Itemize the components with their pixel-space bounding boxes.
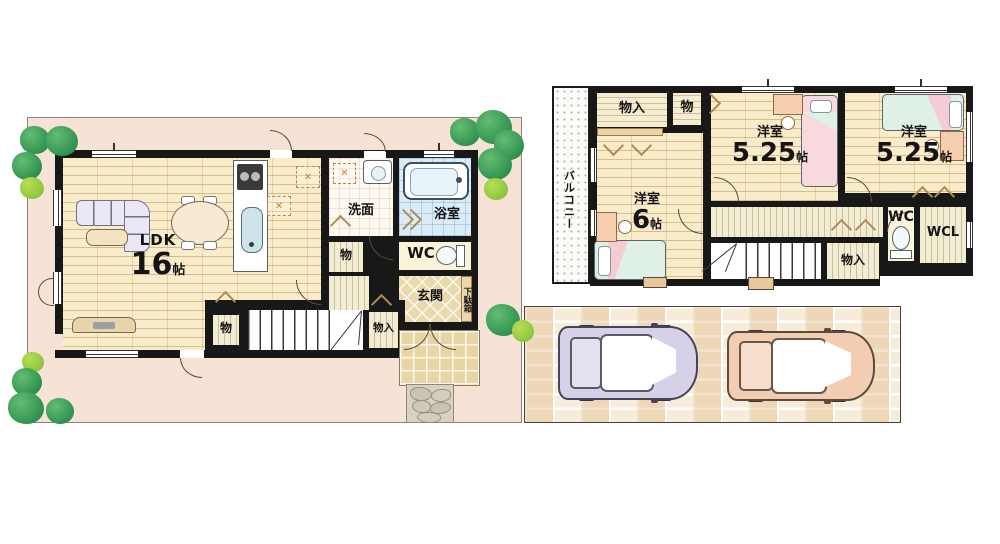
wash-basin (363, 160, 392, 184)
bathtub (403, 162, 469, 200)
bed-6jo (594, 240, 666, 280)
window (966, 222, 973, 248)
window (53, 190, 62, 226)
tree-icon (12, 152, 42, 180)
window (895, 86, 947, 93)
label-monoire-bottom: 物入 (834, 254, 872, 267)
car-left (558, 326, 698, 400)
label-ldk: LDK 16帖 (118, 233, 198, 280)
label-mono-a: 物 (334, 249, 358, 262)
label-wcl: WCL (924, 226, 962, 240)
label-balcony: バルコニー (563, 152, 575, 248)
closet-shelf-bar (597, 128, 663, 136)
label-room6: 洋室 6帖 (612, 193, 682, 234)
window (86, 350, 138, 358)
balcony-door (590, 148, 597, 182)
window (424, 150, 454, 158)
kitchen-sink (241, 207, 263, 253)
tree-icon (46, 126, 78, 156)
window (966, 112, 973, 162)
tree-icon (20, 177, 44, 199)
tree-icon (484, 178, 508, 200)
label-senmen: 洗面 (334, 204, 388, 218)
tree-icon (8, 392, 44, 424)
stove-icon (237, 164, 263, 190)
stairs-1f (248, 310, 363, 350)
stairs-2f (711, 243, 821, 279)
appliance-space: ✕ (267, 196, 291, 216)
window (590, 210, 597, 236)
label-room525b: 洋室 5.25帖 (872, 126, 956, 167)
appliance-space: ✕ (296, 166, 320, 188)
label-mono-b: 物 (215, 322, 237, 335)
door-gap (364, 151, 386, 159)
window (53, 272, 62, 304)
exterior-vent (748, 277, 774, 290)
window (92, 150, 136, 158)
desk (773, 94, 803, 115)
label-room525a: 洋室 5.25帖 (728, 126, 812, 167)
tv-board (72, 317, 136, 333)
label-genkan: 玄関 (402, 290, 458, 304)
window (742, 86, 794, 93)
label-wc-2f: WC (886, 210, 916, 225)
label-mono-top: 物 (676, 101, 698, 115)
label-monoire-top: 物入 (612, 102, 652, 116)
tree-icon (46, 398, 74, 424)
stone-approach (406, 384, 454, 423)
dining-chair (203, 241, 217, 250)
label-wc-1f: WC (404, 246, 438, 262)
door-gap (270, 150, 292, 158)
kitchen-counter (233, 160, 268, 272)
exterior-vent (643, 277, 667, 288)
floor-plan-canvas: ✕ ✕ ✕ (0, 0, 1000, 544)
label-monoire-1f: 物入 (368, 323, 399, 334)
door-gap (180, 350, 204, 358)
washer-space: ✕ (333, 163, 356, 184)
tree-icon (478, 148, 512, 180)
tree-icon (512, 320, 534, 342)
label-bath: 浴室 (420, 208, 474, 222)
car-right (727, 331, 875, 401)
label-getabako: 下駄箱 (462, 280, 471, 320)
hall-1f (329, 276, 369, 310)
